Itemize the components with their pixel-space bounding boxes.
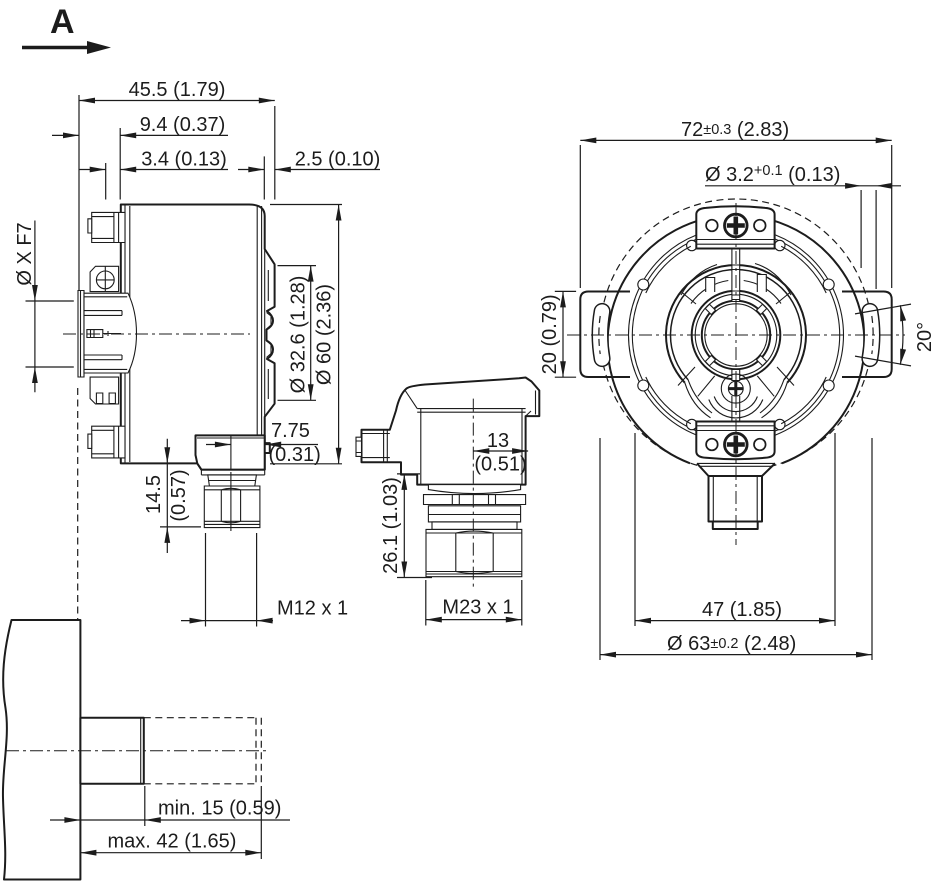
svg-text:(0.31): (0.31): [269, 444, 321, 466]
svg-text:72±0.3 (2.83): 72±0.3 (2.83): [681, 119, 789, 141]
svg-text:M12 x 1: M12 x 1: [277, 598, 348, 620]
svg-text:45.5 (1.79): 45.5 (1.79): [129, 79, 226, 101]
svg-text:47 (1.85): 47 (1.85): [702, 599, 782, 621]
svg-text:max. 42 (1.65): max. 42 (1.65): [108, 831, 237, 853]
svg-text:(0.51): (0.51): [474, 454, 526, 476]
svg-text:13: 13: [487, 430, 509, 452]
svg-text:Ø 32.6 (1.28): Ø 32.6 (1.28): [288, 276, 310, 394]
svg-text:Ø X F7: Ø X F7: [14, 222, 36, 285]
svg-text:A: A: [50, 3, 75, 41]
svg-text:7.75: 7.75: [271, 420, 310, 442]
svg-text:2.5 (0.10): 2.5 (0.10): [295, 149, 381, 171]
svg-text:20 (0.79): 20 (0.79): [539, 294, 561, 374]
svg-text:3.4 (0.13): 3.4 (0.13): [141, 149, 227, 171]
svg-text:M23 x 1: M23 x 1: [442, 597, 513, 619]
svg-text:Ø 60 (2.36): Ø 60 (2.36): [314, 284, 336, 385]
svg-text:Ø 63±0.2 (2.48): Ø 63±0.2 (2.48): [667, 633, 796, 655]
svg-text:9.4 (0.37): 9.4 (0.37): [140, 114, 226, 136]
svg-text:14.5: 14.5: [143, 475, 165, 514]
svg-text:min. 15 (0.59): min. 15 (0.59): [158, 798, 281, 820]
svg-text:26.1 (1.03): 26.1 (1.03): [380, 477, 402, 574]
svg-text:20°: 20°: [914, 322, 936, 352]
svg-text:Ø 3.2+0.1 (0.13): Ø 3.2+0.1 (0.13): [705, 163, 840, 186]
svg-text:(0.57): (0.57): [168, 469, 190, 521]
